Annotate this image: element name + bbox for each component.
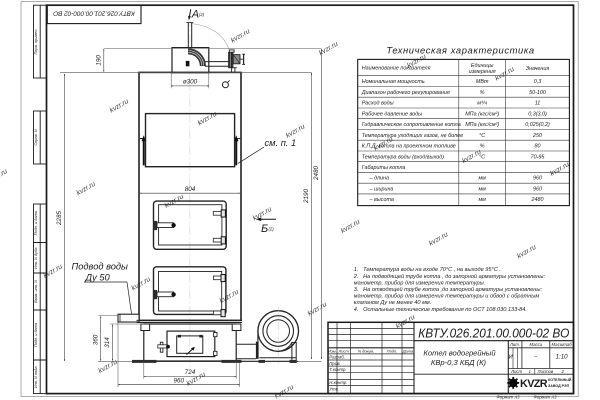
svg-text:Инв. N дубл.: Инв. N дубл. bbox=[33, 247, 38, 270]
svg-text:м³/ч: м³/ч bbox=[477, 101, 487, 107]
svg-text:Температура уходящих газов, не: Температура уходящих газов, не более bbox=[362, 133, 463, 139]
svg-text:– высота: – высота bbox=[369, 197, 394, 203]
svg-text:1: 1 bbox=[529, 369, 532, 374]
svg-text:см. п. 1: см. п. 1 bbox=[265, 138, 297, 148]
svg-text:И: И bbox=[509, 354, 513, 360]
svg-text:2285: 2285 bbox=[56, 211, 63, 227]
svg-text:360: 360 bbox=[92, 334, 99, 345]
svg-text:А: А bbox=[191, 9, 199, 21]
svg-text:°С: °С bbox=[479, 154, 485, 160]
svg-text:Лист: Лист bbox=[510, 369, 522, 374]
svg-text:kvzr.ru: kvzr.ru bbox=[307, 301, 329, 317]
svg-text:Гидравлическое сопротивление к: Гидравлическое сопротивление котла bbox=[362, 122, 461, 128]
svg-text:804: 804 bbox=[185, 186, 196, 193]
svg-text:Масштаб: Масштаб bbox=[552, 342, 573, 347]
svg-text:Подвод воды: Подвод воды bbox=[72, 261, 129, 271]
svg-text:kvzr.ru: kvzr.ru bbox=[130, 276, 152, 292]
svg-text:Подп. и дата: Подп. и дата bbox=[33, 322, 38, 347]
svg-text:Подп.: Подп. bbox=[387, 349, 398, 354]
svg-text:2. На подводящей трубе котла: 2. На подводящей трубе котла , до запорн… bbox=[353, 273, 546, 280]
svg-text:(2): (2) bbox=[269, 227, 275, 232]
svg-text:Изм.: Изм. bbox=[328, 349, 337, 354]
svg-text:Наименование показателя: Наименование показателя bbox=[362, 66, 431, 72]
svg-text:kvzr.ru: kvzr.ru bbox=[42, 263, 64, 279]
svg-text:клапаном Ду не менее 40 мм.: клапаном Ду не менее 40 мм. bbox=[354, 300, 432, 306]
svg-text:мм: мм bbox=[478, 197, 486, 203]
svg-text:Лист: Лист bbox=[338, 349, 350, 354]
svg-text:Масса: Масса bbox=[529, 342, 542, 347]
svg-text:Б: Б bbox=[261, 223, 268, 235]
svg-text:70-95: 70-95 bbox=[531, 154, 546, 160]
svg-text:– ширина: – ширина bbox=[369, 187, 394, 193]
svg-text:Расход воды: Расход воды bbox=[362, 101, 394, 107]
svg-text:Разраб.: Разраб. bbox=[329, 355, 345, 360]
svg-text:Единицы: Единицы bbox=[471, 63, 494, 69]
svg-text:kvzr.ru: kvzr.ru bbox=[75, 181, 97, 197]
svg-text:Пров.: Пров. bbox=[329, 361, 340, 366]
svg-text:2480: 2480 bbox=[531, 197, 544, 203]
svg-text:kvzr.ru: kvzr.ru bbox=[109, 98, 131, 114]
svg-text:Т.контр.: Т.контр. bbox=[329, 367, 346, 372]
svg-text:%: % bbox=[480, 144, 485, 150]
svg-text:мм: мм bbox=[478, 176, 486, 182]
svg-text:Номинальная мощность: Номинальная мощность bbox=[362, 79, 425, 85]
svg-text:Инв. N подл.: Инв. N подл. bbox=[33, 365, 38, 388]
svg-text:КВТУ.026.201.00.000-02 ВО: КВТУ.026.201.00.000-02 ВО bbox=[53, 10, 134, 17]
svg-text:960: 960 bbox=[533, 187, 542, 193]
svg-text:kvzr.ru: kvzr.ru bbox=[0, 168, 9, 184]
svg-text:манометр, прибор для измерения: манометр, прибор для измерения температу… bbox=[354, 280, 485, 286]
svg-text:Габариты котла: Габариты котла bbox=[362, 165, 406, 171]
svg-text:kvzr.ru: kvzr.ru bbox=[516, 244, 538, 260]
svg-text:N докум.: N докум. bbox=[358, 349, 374, 354]
svg-text:0,3: 0,3 bbox=[534, 79, 542, 85]
svg-text:измерения: измерения bbox=[469, 69, 496, 75]
svg-text:манометр, прибор для измерения: манометр, прибор для измерения температу… bbox=[354, 294, 540, 300]
svg-text:Утв.: Утв. bbox=[329, 386, 339, 391]
svg-text:2190: 2190 bbox=[303, 189, 310, 205]
svg-text:Ду 50: Ду 50 bbox=[85, 272, 111, 282]
svg-text:kvzr.ru: kvzr.ru bbox=[494, 66, 516, 82]
svg-text:80: 80 bbox=[535, 144, 541, 150]
svg-text:°С: °С bbox=[479, 133, 485, 139]
svg-text:2480: 2480 bbox=[313, 166, 320, 182]
svg-text:– длина: – длина bbox=[369, 176, 389, 182]
svg-text:11: 11 bbox=[535, 101, 541, 107]
svg-text:3. На отводящей трубе котла: 3. На отводящей трубе котла ,до запорной… bbox=[354, 286, 543, 293]
svg-text:Листов: Листов bbox=[537, 369, 554, 374]
svg-text:kvzr.ru: kvzr.ru bbox=[428, 231, 450, 247]
svg-text:Котел водогрейный: Котел водогрейный bbox=[423, 348, 496, 357]
svg-text:kvzr.ru: kvzr.ru bbox=[340, 219, 362, 235]
svg-text:Взам. инв. N: Взам. инв. N bbox=[33, 280, 38, 303]
svg-text:250: 250 bbox=[532, 133, 542, 139]
svg-text:Значения: Значения bbox=[526, 66, 550, 72]
svg-text:724: 724 bbox=[185, 369, 196, 376]
svg-text:КОТЕЛЬНЫЙ: КОТЕЛЬНЫЙ bbox=[548, 378, 572, 382]
svg-text:Техническая характеристика: Техническая характеристика bbox=[386, 45, 534, 56]
svg-text:4. Остальные технические тре: 4. Остальные технические требования по О… bbox=[354, 307, 527, 313]
svg-text:kvzr.ru: kvzr.ru bbox=[230, 28, 252, 44]
svg-text:kvzr.ru: kvzr.ru bbox=[318, 41, 340, 57]
svg-text:Лит.: Лит. bbox=[509, 342, 520, 347]
svg-text:КВр-0,3 КБД (К): КВр-0,3 КБД (К) bbox=[431, 358, 487, 367]
svg-text:960: 960 bbox=[174, 377, 185, 384]
svg-text:kvzr.ru: kvzr.ru bbox=[274, 384, 296, 400]
svg-text:kvzr.ru: kvzr.ru bbox=[549, 161, 571, 177]
svg-text:%: % bbox=[480, 90, 485, 96]
svg-text:(2): (2) bbox=[199, 12, 205, 17]
svg-text:Формат А3: Формат А3 bbox=[534, 394, 558, 399]
svg-text:МПа (кгс/см²): МПа (кгс/см²) bbox=[465, 111, 499, 117]
svg-text:1. Температура воды на входе: 1. Температура воды на входе 70°С , на в… bbox=[354, 267, 501, 273]
svg-text:Рабочее давление воды: Рабочее давление воды bbox=[362, 111, 422, 117]
svg-text:0,025(0,2): 0,025(0,2) bbox=[525, 122, 550, 128]
svg-text:–: – bbox=[533, 354, 538, 360]
svg-text:КВТУ.026.201.00.000-02 ВО: КВТУ.026.201.00.000-02 ВО bbox=[418, 326, 569, 340]
svg-text:2: 2 bbox=[561, 369, 565, 374]
svg-text:50-100: 50-100 bbox=[529, 90, 546, 96]
svg-text:МВт: МВт bbox=[476, 79, 489, 85]
svg-text:Диапазон рабочего регулировани: Диапазон рабочего регулирования bbox=[361, 90, 450, 96]
svg-text:ЗАВОД РЭП: ЗАВОД РЭП bbox=[548, 384, 570, 388]
svg-text:0,3(3,0): 0,3(3,0) bbox=[528, 111, 547, 117]
svg-text:мм: мм bbox=[478, 187, 486, 193]
svg-text:314: 314 bbox=[104, 337, 111, 348]
svg-text:KVZR: KVZR bbox=[520, 378, 548, 390]
svg-text:ø300: ø300 bbox=[183, 78, 198, 85]
svg-text:Н.контр.: Н.контр. bbox=[329, 380, 347, 385]
svg-text:Формат А3: Формат А3 bbox=[497, 394, 521, 399]
svg-text:К.П.Д. котла на проектном топл: К.П.Д. котла на проектном топливе bbox=[362, 144, 456, 150]
svg-text:Температура воды (вход/выход): Температура воды (вход/выход) bbox=[362, 154, 445, 160]
svg-text:Подп. и дата: Подп. и дата bbox=[33, 210, 38, 235]
svg-text:kvzr.ru: kvzr.ru bbox=[252, 206, 274, 222]
svg-text:960: 960 bbox=[533, 176, 542, 182]
svg-text:Справ. N: Справ. N bbox=[33, 129, 38, 145]
svg-text:190: 190 bbox=[96, 55, 103, 66]
svg-text:МПа (кгс/см²): МПа (кгс/см²) bbox=[465, 122, 499, 128]
svg-text:1:10: 1:10 bbox=[556, 354, 569, 361]
svg-text:Дата: Дата bbox=[402, 349, 414, 354]
svg-text:Перв. примен.: Перв. примен. bbox=[33, 29, 38, 55]
